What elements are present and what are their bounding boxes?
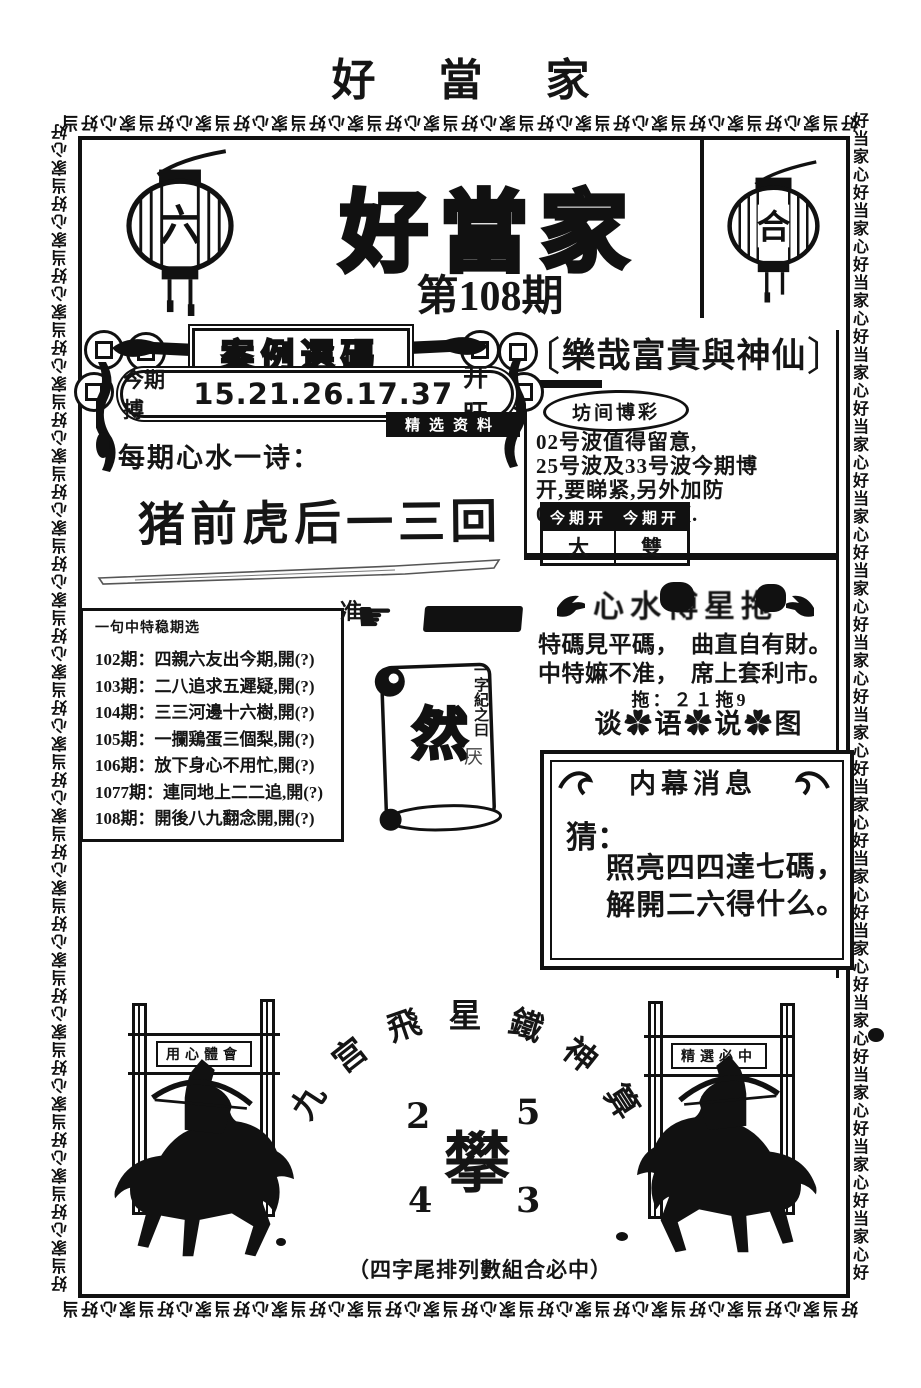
right-column-header-title: 樂哉富貴與神仙 — [562, 328, 807, 377]
text-line: 104期：三三河邊十六樹,開(?) — [95, 700, 333, 727]
text-line: 105期：一攔鶏蛋三個梨,開(?) — [95, 727, 333, 754]
dove-icon — [555, 588, 585, 618]
history-box: 一句中特稳期选 102期：四親六友出今期,開(?)103期：二八追求五遲疑,開(… — [80, 608, 344, 842]
text-line: 解開二六得什么。 — [606, 886, 846, 925]
text-line: 照亮四四達七碼， — [606, 849, 846, 888]
lantern-left-char: 六 — [159, 203, 201, 250]
lantern-right-char: 合 — [757, 208, 791, 246]
draw-label: 今期搏 — [123, 364, 183, 424]
grid-number-top-left: 2 — [406, 1096, 430, 1137]
border-left-text: 好当家心好当家心好当家心好当家心好当家心好当家心好当家心好当家心好当家心好当家心… — [50, 112, 74, 1292]
sword-stroke-graphic — [95, 556, 510, 590]
history-box-title: 一句中特稳期选 — [95, 617, 333, 637]
text-line: 102期：四親六友出今期,開(?) — [95, 647, 333, 674]
mounted-archer-icon — [84, 1057, 309, 1282]
header-divider-line — [700, 140, 704, 318]
scroll-side-char: 厌 — [464, 742, 483, 769]
prediction-table-header: 今期开 — [542, 504, 616, 531]
grid-number-bottom-left: 4 — [408, 1180, 432, 1221]
dove-icon — [786, 588, 816, 618]
header-bracket-right: 〕 — [807, 324, 848, 382]
arc-title-char: 星 — [445, 989, 485, 1037]
border-top-text: 好当家心好当家心好当家心好当家心好当家心好当家心好当家心好当家心好当家心好当家心… — [62, 108, 858, 136]
ink-blotch — [660, 582, 694, 612]
inside-news-title: 内幕消息 — [540, 762, 846, 801]
ink-speck — [96, 432, 110, 458]
text-line: 103期：二八追求五遲疑,開(?) — [95, 674, 333, 701]
highlight-tag: 精选资料 — [386, 412, 520, 437]
poem-verse: 猪前虎后一三回 — [138, 482, 529, 555]
text-line: 1077期：連同地上二二追,開(?) — [95, 780, 333, 807]
prediction-table-value: 大 — [542, 530, 616, 565]
text-line: 02号波值得留意, — [536, 430, 836, 454]
scroll-big-char: 然 — [408, 690, 472, 771]
right-column-header: 〔 樂哉富貴與神仙 〕 — [524, 328, 844, 386]
ribbon-knot-icon — [112, 334, 202, 362]
text-line: 开,要睇紧,另外加防 — [536, 478, 836, 502]
lantern-six-icon: 六 — [95, 146, 265, 316]
draw-result-pill: 今期搏 15.21.26.17.37 开旺 — [120, 370, 514, 418]
prediction-table: 今期开 今期开 大 雙 — [540, 502, 690, 566]
flower-decorated-line: 谈✿语✿说✿图 — [552, 702, 847, 741]
special-code-verse: 特碼見平碼， 曲直自有財。中特嫲不准， 席上套利市。 — [538, 630, 843, 688]
issue-number: 第108期 — [300, 262, 680, 323]
ink-speck — [276, 1238, 286, 1246]
guess-riddle-lines: 照亮四四達七碼，解開二六得什么。 — [606, 849, 847, 925]
border-bottom-text: 好当家心好当家心好当家心好当家心好当家心好当家心好当家心好当家心好当家心好当家心… — [62, 1294, 858, 1322]
header-bracket-left: 〔 — [521, 324, 562, 382]
ink-speck — [868, 1028, 884, 1042]
ribbon-knot-icon — [398, 332, 488, 360]
pointing-hand-icon: ☛ — [356, 592, 394, 641]
history-rows: 102期：四親六友出今期,開(?)103期：二八追求五遲疑,開(?)104期：三… — [95, 647, 333, 833]
gate-warrior-right: 精選必中 — [612, 995, 842, 1285]
lantern-he-icon: 合 — [706, 148, 841, 313]
text-line: 中特嫲不准， 席上套利市。 — [538, 659, 843, 688]
page-title: 好 當 家 — [0, 44, 921, 108]
draw-numbers: 15.21.26.17.37 — [193, 377, 453, 411]
mounted-archer-icon — [622, 1053, 847, 1278]
prediction-table-header: 今期开 — [615, 504, 689, 531]
poem-label: 每期心水一诗： — [118, 436, 321, 475]
text-line: 108期：開後八九翻念開,開(?) — [95, 806, 333, 833]
ink-blotch — [756, 584, 786, 612]
text-line: 106期：放下身心不用忙,開(?) — [95, 753, 333, 780]
newspaper-page: 好 當 家 好当家心好当家心好当家心好当家心好当家心好当家心好当家心好当家心好当… — [0, 0, 921, 1388]
coin-hole — [95, 341, 113, 359]
text-line: 特碼見平碼， 曲直自有財。 — [538, 630, 843, 659]
ink-smudge — [423, 606, 523, 632]
ink-speck — [616, 1232, 628, 1241]
center-character: 攀 — [432, 1110, 522, 1206]
text-line: 25号波及33号波今期博 — [536, 454, 836, 478]
prediction-table-value: 雙 — [615, 530, 689, 565]
